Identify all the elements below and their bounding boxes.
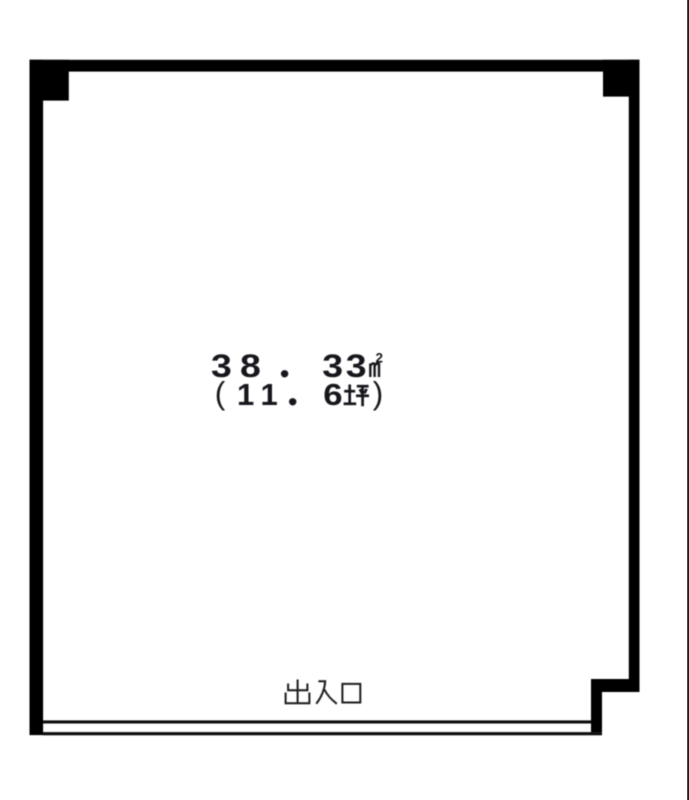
- svg-text:): ): [373, 375, 384, 411]
- svg-text:1: 1: [237, 377, 254, 412]
- svg-text:3: 3: [346, 349, 367, 385]
- svg-text:6: 6: [323, 377, 342, 412]
- svg-text:2: 2: [376, 351, 384, 366]
- svg-text:1: 1: [261, 377, 278, 412]
- svg-text:(: (: [215, 375, 226, 411]
